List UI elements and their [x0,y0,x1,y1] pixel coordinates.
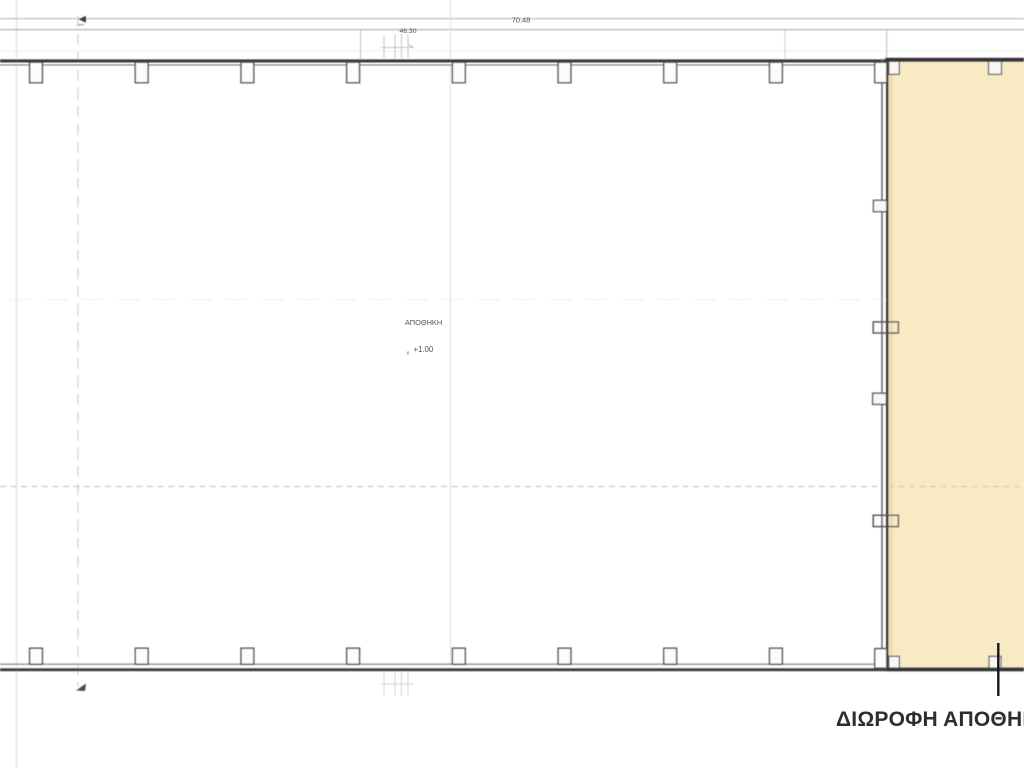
svg-text:+1.00: +1.00 [414,345,434,354]
svg-text:ΔΙΩΡΟΦΗ ΑΠΟΘΗΚΗ: ΔΙΩΡΟΦΗ ΑΠΟΘΗΚΗ [836,708,1024,731]
svg-text:ΑΠΟΘΗΚΗ: ΑΠΟΘΗΚΗ [405,318,442,327]
svg-text:46.30: 46.30 [399,28,416,35]
svg-text:x: x [407,351,410,357]
svg-text:70.48: 70.48 [512,16,531,25]
